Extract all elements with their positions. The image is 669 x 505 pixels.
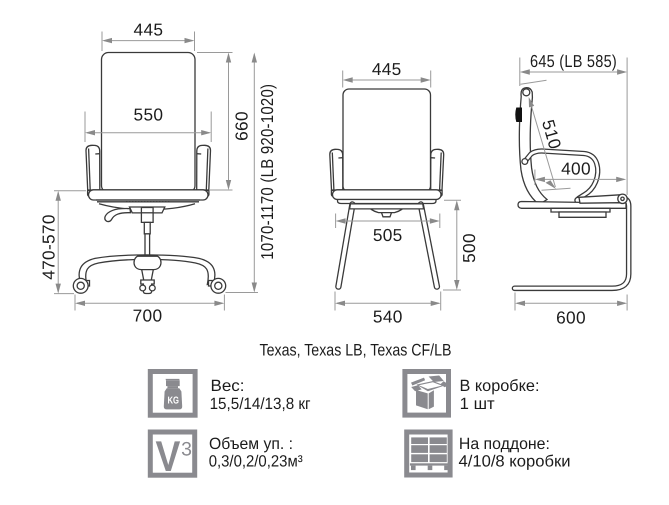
svg-text:660: 660 <box>231 111 251 141</box>
svg-text:445: 445 <box>372 59 402 79</box>
svg-text:Texas, Texas LB, Texas CF/LB: Texas, Texas LB, Texas CF/LB <box>260 340 452 359</box>
svg-text:700: 700 <box>133 306 163 326</box>
svg-text:470-570: 470-570 <box>39 214 59 280</box>
svg-text:600: 600 <box>556 308 586 328</box>
svg-text:1070-1170 (LB 920-1020): 1070-1170 (LB 920-1020) <box>257 84 277 260</box>
svg-text:Вес:: Вес: <box>211 377 245 395</box>
svg-text:505: 505 <box>373 225 403 245</box>
svg-text:В коробке:: В коробке: <box>460 377 540 395</box>
svg-text:0,3/0,2/0,23м³: 0,3/0,2/0,23м³ <box>209 453 304 471</box>
svg-text:На поддоне:: На поддоне: <box>459 435 550 453</box>
svg-text:Объем уп. :: Объем уп. : <box>209 435 293 453</box>
svg-text:445: 445 <box>134 19 164 39</box>
svg-text:500: 500 <box>459 233 479 263</box>
svg-text:15,5/14/13,8 кг: 15,5/14/13,8 кг <box>210 395 311 413</box>
svg-text:3: 3 <box>181 438 192 460</box>
svg-text:4/10/8 коробки: 4/10/8 коробки <box>459 453 571 471</box>
svg-text:645 (LB 585): 645 (LB 585) <box>530 51 617 71</box>
svg-text:400: 400 <box>561 159 591 179</box>
svg-text:550: 550 <box>134 104 164 124</box>
svg-text:540: 540 <box>373 306 403 326</box>
svg-text:1 шт: 1 шт <box>460 395 496 413</box>
svg-text:KG: KG <box>167 396 179 407</box>
